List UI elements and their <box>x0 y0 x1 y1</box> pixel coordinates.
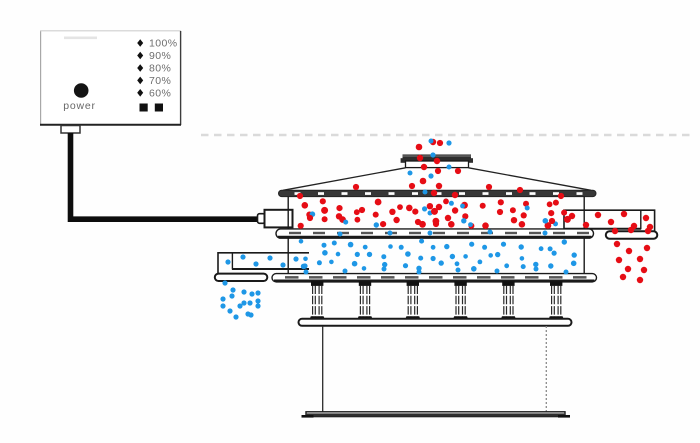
svg-text:60%: 60% <box>149 87 171 99</box>
svg-text:power: power <box>63 100 96 112</box>
svg-text:70%: 70% <box>149 75 171 87</box>
svg-text:100%: 100% <box>149 38 177 50</box>
svg-text:90%: 90% <box>149 50 171 62</box>
svg-text:80%: 80% <box>149 63 171 75</box>
